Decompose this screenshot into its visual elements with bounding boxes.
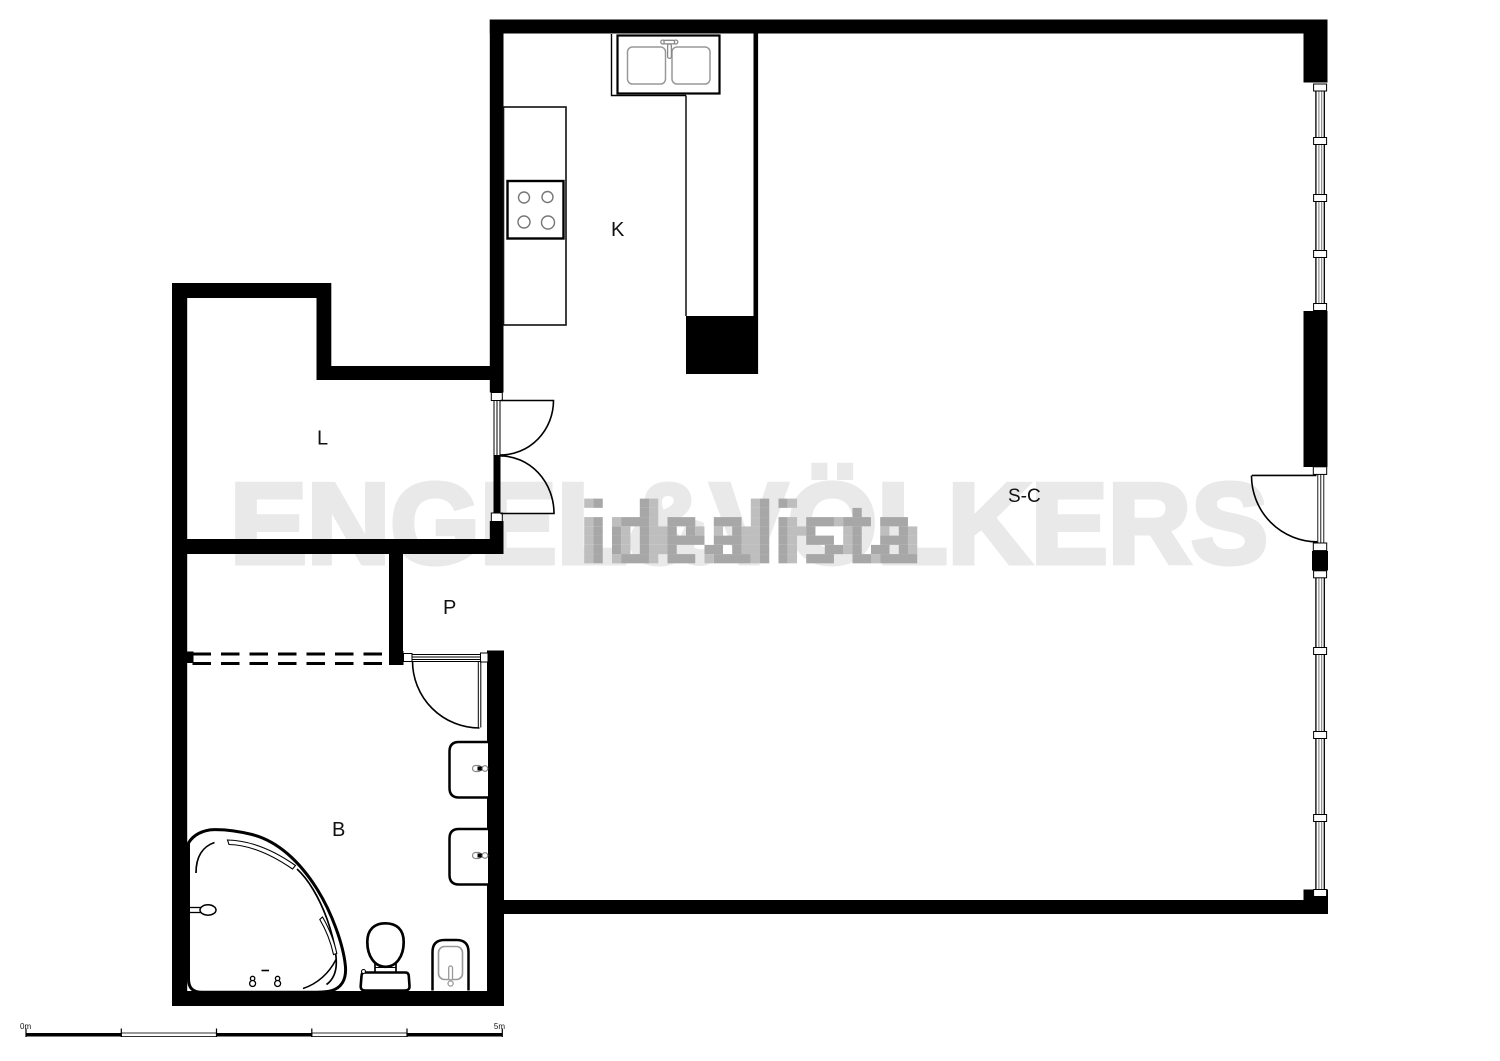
svg-text:L: L xyxy=(317,428,328,450)
svg-text:0m: 0m xyxy=(20,1022,31,1031)
svg-text:P: P xyxy=(443,597,456,619)
svg-text:5m: 5m xyxy=(494,1022,505,1031)
svg-text:S-C: S-C xyxy=(1008,486,1041,507)
svg-text:ENGEL&VÖLKERS: ENGEL&VÖLKERS xyxy=(230,461,1268,588)
svg-text:K: K xyxy=(611,219,625,241)
svg-text:B: B xyxy=(332,819,345,841)
